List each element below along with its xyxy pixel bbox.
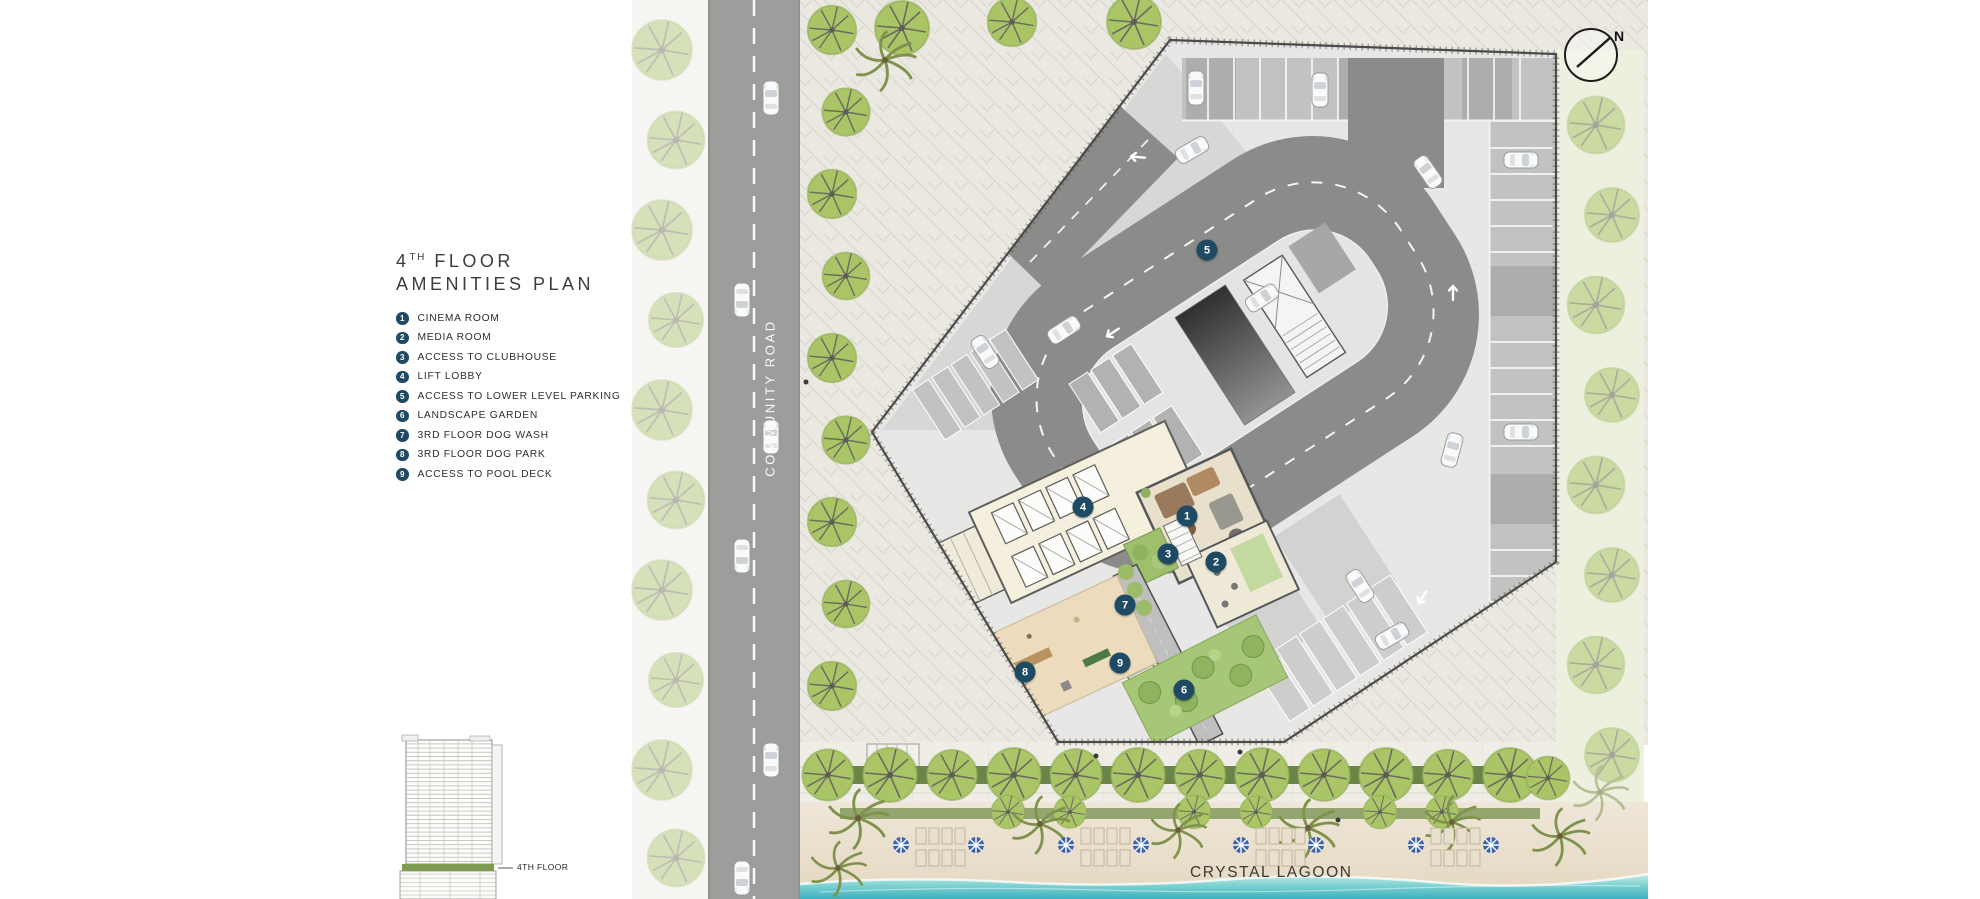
elevation-4th-floor-band	[402, 864, 494, 871]
community-road-label: COMMUNITY ROAD	[763, 319, 778, 477]
plan-marker-2-media-room: 2	[1206, 552, 1227, 573]
legend-label-9: ACCESS TO POOL DECK	[418, 469, 553, 480]
legend-item-access-to-lower-level-parking: 5 ACCESS TO LOWER LEVEL PARKING	[396, 390, 621, 403]
legend-item-access-to-pool-deck: 9 ACCESS TO POOL DECK	[396, 468, 621, 481]
plan-marker-5-lower-level-parking: 5	[1197, 240, 1218, 261]
east-green-strip	[1556, 50, 1644, 832]
building-elevation	[400, 735, 513, 899]
plan-marker-8-dog-park: 8	[1015, 662, 1036, 683]
plan-marker-4-lift-lobby: 4	[1073, 497, 1094, 518]
legend-label-1: CINEMA ROOM	[418, 313, 500, 324]
legend-label-8: 3RD FLOOR DOG PARK	[418, 449, 546, 460]
title-floor-number: 4	[396, 251, 410, 271]
legend-item-cinema-room: 1 CINEMA ROOM	[396, 312, 621, 325]
legend-badge-1: 1	[396, 312, 409, 325]
legend-badge-2: 2	[396, 332, 409, 345]
title-subtitle: AMENITIES PLAN	[396, 274, 594, 294]
legend-item-dog-wash: 7 3RD FLOOR DOG WASH	[396, 429, 621, 442]
page-title: 4TH FLOOR AMENITIES PLAN	[396, 246, 594, 296]
plan-marker-6-landscape-garden: 6	[1174, 680, 1195, 701]
legend-label-3: ACCESS TO CLUBHOUSE	[418, 352, 557, 363]
legend-badge-8: 8	[396, 449, 409, 462]
legend-label-7: 3RD FLOOR DOG WASH	[418, 430, 549, 441]
site-plan-graphic	[0, 0, 1980, 899]
title-floor-ordinal: TH	[410, 252, 426, 263]
site-plan-page: 4TH FLOOR AMENITIES PLAN 1 CINEMA ROOM 2…	[0, 0, 1980, 899]
compass-north-label: N	[1614, 28, 1624, 44]
legend-label-2: MEDIA ROOM	[418, 332, 492, 343]
legend-label-4: LIFT LOBBY	[418, 371, 483, 382]
legend-badge-7: 7	[396, 429, 409, 442]
community-road	[708, 0, 800, 899]
legend: 1 CINEMA ROOM 2 MEDIA ROOM 3 ACCESS TO C…	[396, 312, 621, 488]
plan-marker-7-dog-wash: 7	[1115, 595, 1136, 616]
legend-badge-5: 5	[396, 390, 409, 403]
crystal-lagoon-label: CRYSTAL LAGOON	[1190, 864, 1353, 882]
legend-label-5: ACCESS TO LOWER LEVEL PARKING	[418, 391, 621, 402]
title-floor-word: FLOOR	[434, 251, 514, 271]
legend-badge-9: 9	[396, 468, 409, 481]
legend-item-dog-park: 8 3RD FLOOR DOG PARK	[396, 449, 621, 462]
legend-item-lift-lobby: 4 LIFT LOBBY	[396, 371, 621, 384]
plan-marker-3-access-to-clubhouse: 3	[1158, 544, 1179, 565]
legend-badge-4: 4	[396, 371, 409, 384]
compass-icon	[1565, 29, 1617, 81]
legend-item-landscape-garden: 6 LANDSCAPE GARDEN	[396, 410, 621, 423]
plan-marker-1-cinema-room: 1	[1177, 506, 1198, 527]
legend-badge-6: 6	[396, 410, 409, 423]
legend-item-media-room: 2 MEDIA ROOM	[396, 332, 621, 345]
plan-marker-9-pool-deck: 9	[1110, 653, 1131, 674]
legend-item-access-to-clubhouse: 3 ACCESS TO CLUBHOUSE	[396, 351, 621, 364]
legend-badge-3: 3	[396, 351, 409, 364]
elevation-floor-label: 4TH FLOOR	[517, 862, 568, 872]
legend-label-6: LANDSCAPE GARDEN	[418, 410, 539, 421]
parking-column-right	[1490, 122, 1557, 620]
